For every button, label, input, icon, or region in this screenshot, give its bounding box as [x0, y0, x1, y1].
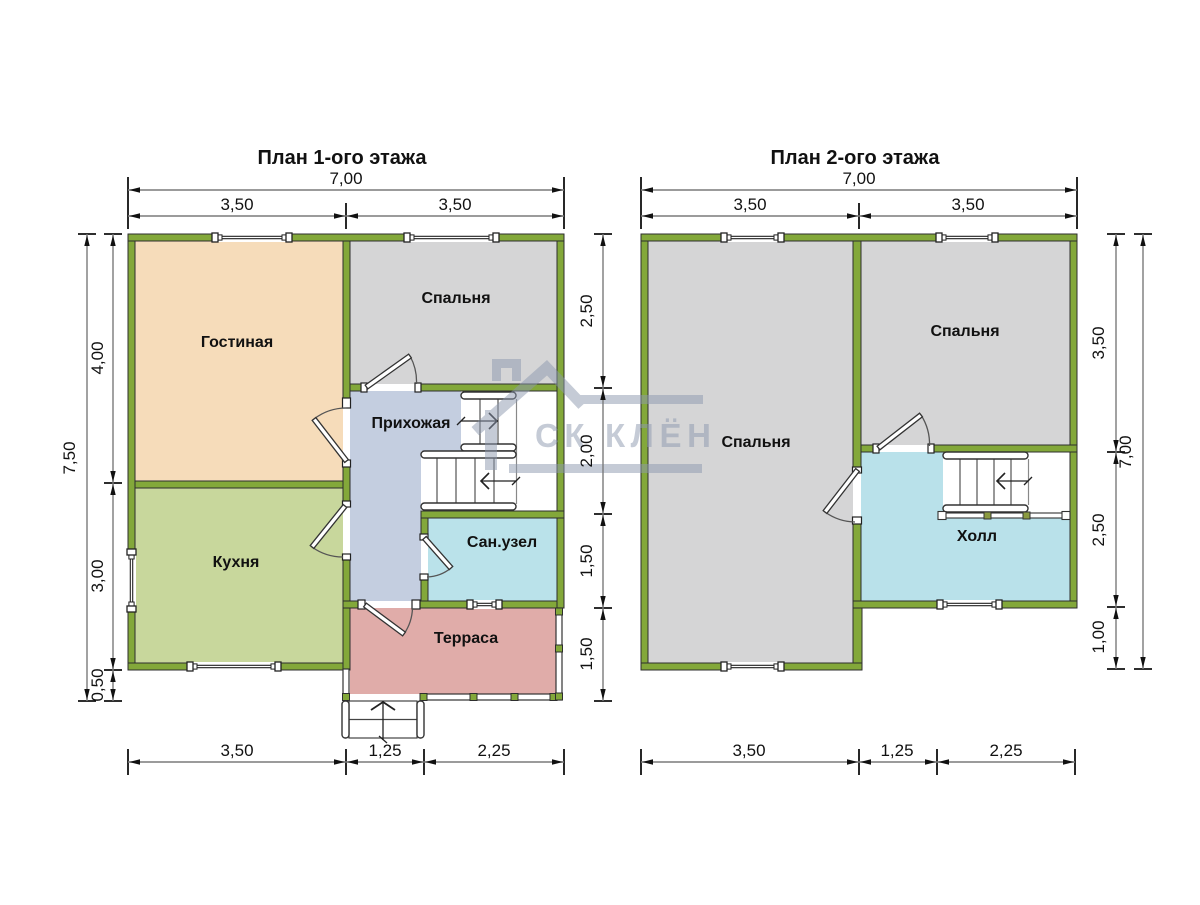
svg-text:1,50: 1,50 [577, 544, 596, 577]
svg-text:3,50: 3,50 [951, 195, 984, 214]
svg-text:2,25: 2,25 [477, 741, 510, 760]
svg-text:СК КЛЁН: СК КЛЁН [535, 417, 717, 454]
svg-text:3,50: 3,50 [220, 741, 253, 760]
svg-text:Прихожая: Прихожая [372, 415, 451, 432]
svg-text:0,50: 0,50 [88, 668, 107, 701]
svg-text:Спальня: Спальня [421, 290, 490, 307]
svg-text:Спальня: Спальня [930, 323, 999, 340]
svg-text:3,50: 3,50 [1089, 326, 1108, 359]
svg-text:Сан.узел: Сан.узел [467, 534, 537, 551]
svg-text:1,25: 1,25 [368, 741, 401, 760]
svg-text:1,25: 1,25 [880, 741, 913, 760]
svg-text:Гостиная: Гостиная [201, 334, 273, 351]
svg-text:3,50: 3,50 [733, 195, 766, 214]
svg-text:2,25: 2,25 [989, 741, 1022, 760]
svg-text:3,50: 3,50 [732, 741, 765, 760]
svg-text:3,50: 3,50 [438, 195, 471, 214]
svg-text:1,00: 1,00 [1089, 620, 1108, 653]
svg-text:Кухня: Кухня [213, 554, 260, 571]
svg-text:4,00: 4,00 [88, 341, 107, 374]
svg-text:План 1-ого этажа: План 1-ого этажа [258, 147, 428, 169]
svg-text:Холл: Холл [957, 528, 997, 545]
svg-text:2,50: 2,50 [1089, 513, 1108, 546]
svg-text:3,50: 3,50 [220, 195, 253, 214]
svg-text:2,00: 2,00 [577, 434, 596, 467]
svg-text:План 2-ого этажа: План 2-ого этажа [771, 147, 941, 169]
svg-text:7,00: 7,00 [1116, 435, 1135, 468]
svg-text:7,50: 7,50 [60, 441, 79, 474]
svg-text:3,00: 3,00 [88, 559, 107, 592]
svg-text:1,50: 1,50 [577, 637, 596, 670]
svg-text:Спальня: Спальня [721, 434, 790, 451]
svg-text:7,00: 7,00 [842, 169, 875, 188]
svg-text:Терраса: Терраса [434, 630, 498, 647]
svg-text:7,00: 7,00 [329, 169, 362, 188]
svg-text:2,50: 2,50 [577, 294, 596, 327]
